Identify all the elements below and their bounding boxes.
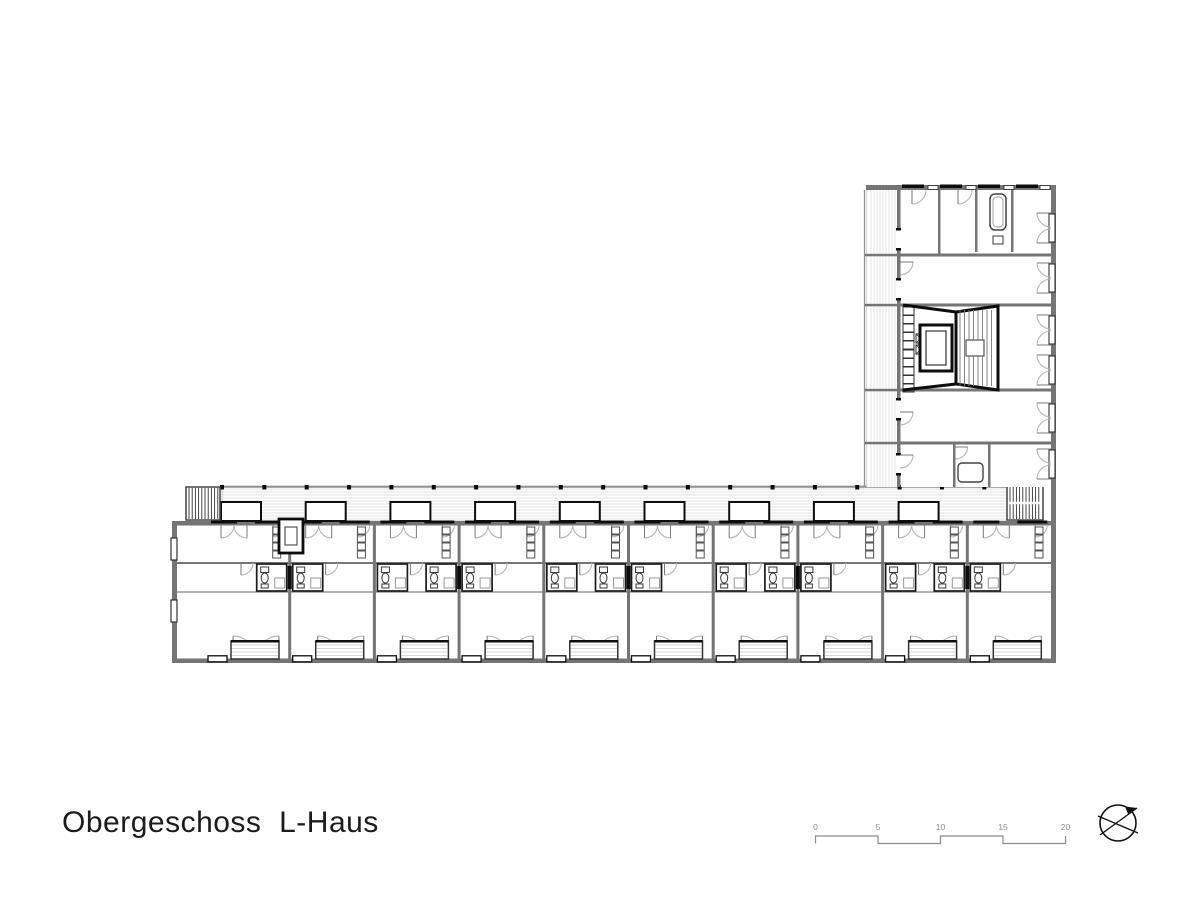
floor-plan-drawing: 05101520 [0, 0, 1200, 900]
drawing-title: Obergeschoss L-Haus [62, 806, 379, 840]
scale-label: 10 [936, 822, 946, 832]
floor-plan-page: 05101520 Obergeschoss L-Haus [0, 0, 1200, 900]
north-arrow-icon [1098, 805, 1138, 841]
scale-label: 15 [998, 822, 1008, 832]
scale-label: 20 [1061, 822, 1071, 832]
scale-label: 5 [876, 822, 881, 832]
scale-label: 0 [813, 822, 818, 832]
scale-bar: 05101520 [813, 822, 1070, 844]
hwing-group [171, 485, 1056, 663]
